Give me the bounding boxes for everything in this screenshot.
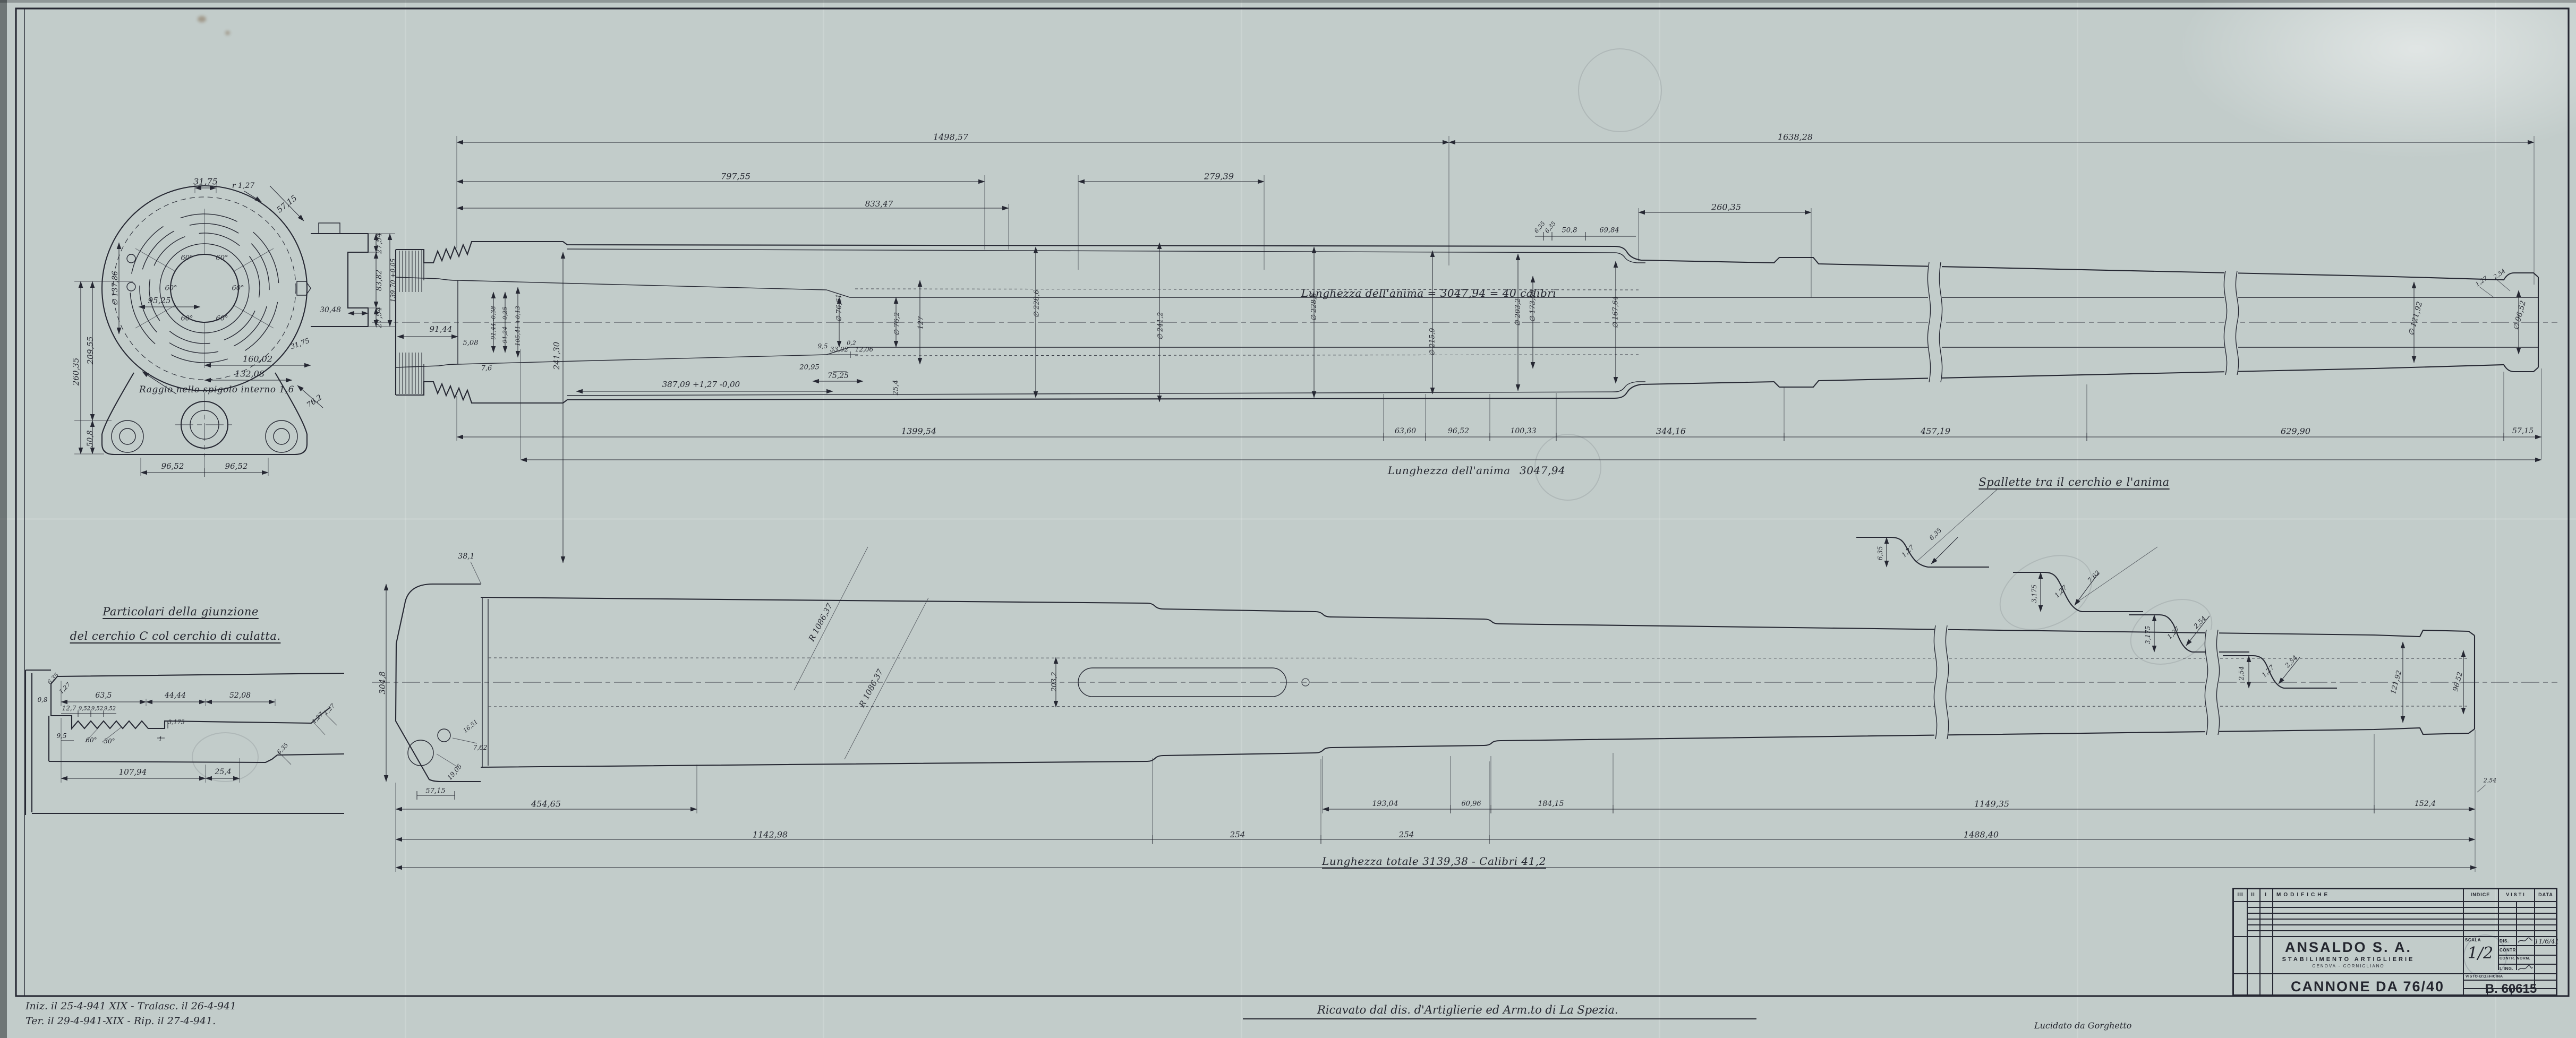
dim-label: 44,44	[165, 691, 186, 700]
title-block-line	[2247, 924, 2556, 925]
date-value: 11/6/41	[2535, 938, 2558, 945]
title-block-line	[2234, 901, 2556, 902]
dim-label: 1638,28	[1778, 132, 1813, 142]
dim-label: 2,54	[2193, 615, 2208, 630]
dim-label: 7,6	[481, 365, 492, 373]
dim-label: r 1,27	[232, 182, 254, 190]
dim-label: 0,8	[37, 696, 47, 704]
dim-label: 105,41 +0,13	[515, 306, 522, 346]
dim-label: 6,35	[1928, 527, 1943, 542]
dim-label: 60°	[216, 315, 228, 323]
dim-label: 30,48	[320, 306, 341, 314]
dim-label: 6,35	[46, 672, 61, 686]
dim-label: 9,5	[817, 342, 828, 350]
dim-label: 50,8	[86, 430, 95, 447]
col-header-data: DATA	[2534, 892, 2557, 897]
dim-label: 38,1	[458, 552, 474, 561]
dim-label: 96,52	[225, 461, 248, 471]
dim-label: 344,16	[1656, 426, 1686, 436]
dim-label: del cerchio C col cerchio di culatta.	[70, 630, 281, 642]
blueprint-sheet: 31,75r 1,2757,1527,9483,82139,70 +0,0527…	[0, 0, 2576, 1038]
dimension-labels: 31,75r 1,2757,1527,9483,82139,70 +0,0527…	[0, 0, 2576, 1038]
dim-label: 184,15	[1538, 800, 1564, 808]
col-header-ii: II	[2247, 892, 2259, 898]
dim-label: ∅ 121,92	[2407, 301, 2424, 337]
dim-label: 387,09 +1,27 -0,00	[662, 380, 740, 389]
dim-label: 2,54	[2492, 268, 2507, 281]
dim-label: Lunghezza dell'anima = 3047,94 = 40 cali…	[1301, 287, 1557, 299]
dim-label: 6,35	[1533, 220, 1547, 234]
dim-label: 9,52	[79, 706, 90, 712]
dim-label: 152,4	[2415, 800, 2436, 808]
dim-label: 83,82	[375, 270, 383, 291]
col-header-i: I	[2259, 892, 2272, 898]
dim-label: 19,05	[446, 762, 464, 781]
col-header-iii: III	[2234, 892, 2247, 898]
dim-label: 91,44 -0,38	[490, 306, 497, 339]
note-source: Ricavato dal dis. d'Artiglierie ed Arm.t…	[1243, 1003, 1756, 1019]
note-dates-line1: Iniz. il 25-4-941 XIX - Tralasc. il 26-4…	[25, 1000, 236, 1012]
dim-label: ∅ 96,52	[2512, 300, 2528, 331]
dim-label: 5,08	[463, 339, 479, 347]
signature-scribble	[2517, 937, 2533, 947]
dim-label: 1,27	[2474, 275, 2489, 288]
drawing-title: CANNONE DA 76/40	[2272, 979, 2463, 995]
dim-label: 1,27	[1900, 544, 1916, 559]
dim-label: R 1086,37	[857, 667, 885, 708]
dim-label: 132,08	[235, 369, 265, 379]
dim-label: 63,60	[1395, 427, 1416, 435]
col-header-visti: VISTI	[2498, 892, 2534, 897]
dim-label: 63,5	[95, 691, 112, 700]
dim-label: 279,39	[1204, 171, 1234, 182]
dim-label: 31,75	[289, 337, 311, 351]
dim-label: 254	[1230, 830, 1246, 839]
dim-label: 96,52	[1448, 427, 1469, 435]
title-block-line	[2247, 930, 2556, 931]
dim-label: 60°	[165, 285, 177, 293]
dim-label: 60°	[232, 285, 244, 293]
dim-label: 33,02	[830, 346, 848, 353]
title-block-line	[2234, 936, 2556, 937]
dim-label: R 1086,37	[807, 602, 835, 642]
dim-label: Raggio nello spigolo interno 1,6	[139, 384, 294, 395]
dim-label: ∅ 203,2	[1514, 298, 1522, 327]
dim-label: 27,94	[375, 233, 383, 254]
dim-label: ∅ 76,61	[835, 294, 843, 322]
dim-label: 2,54	[2238, 666, 2245, 681]
dim-label: ∅ 167,64	[1612, 296, 1620, 329]
title-block-line	[2247, 907, 2556, 908]
dim-label: 1,27	[58, 681, 72, 696]
dim-label: 1,27	[2166, 625, 2181, 641]
note-dates-line2: Ter. il 29-4-941-XIX - Rip. il 27-4-941.	[25, 1015, 216, 1027]
dim-label: 25,4	[892, 380, 900, 396]
dim-label: 9,5	[56, 732, 66, 740]
stamp-circle	[2463, 934, 2507, 978]
dim-label: 1498,57	[933, 132, 968, 142]
dim-label: 20,95	[799, 364, 819, 372]
dim-label: 254	[1399, 830, 1414, 839]
dim-label: 91,44	[430, 324, 453, 334]
dim-label: 833,47	[865, 199, 893, 209]
dim-label: Lunghezza dell'anima 3047,94	[1388, 464, 1566, 477]
dim-label: 260,35	[1711, 202, 1741, 212]
dim-label: 100,33	[1511, 427, 1537, 435]
dim-label: Spallette tra il cerchio e l'anima	[1978, 476, 2169, 488]
dim-label: 91,24 +0,25	[502, 307, 509, 344]
dim-label: ∅ 228,6	[1033, 290, 1041, 318]
dim-label: 1	[159, 736, 163, 743]
dim-label: 12,7	[62, 705, 76, 712]
dim-label: 1,27	[322, 702, 337, 717]
title-block: III II I MODIFICHE INDICE VISTI DATA ANS…	[2232, 888, 2557, 996]
dim-label: Particolari della giunzione	[103, 605, 259, 618]
dim-label: 12,06	[855, 346, 873, 353]
dim-label: 127	[917, 316, 925, 330]
dim-label: 60°	[86, 736, 97, 744]
dim-label: 52,08	[229, 691, 251, 700]
company-dept: STABILIMENTO ARTIGLIERIE	[2234, 956, 2463, 963]
dim-label: 6,35	[1876, 546, 1884, 561]
dim-label: 96,52	[161, 461, 184, 471]
dim-label: 95,25	[148, 296, 171, 305]
dim-label: 30°	[104, 737, 115, 745]
dim-label: 107,94	[119, 767, 147, 777]
dim-label: 241,30	[552, 342, 561, 370]
dim-label: 9,52	[91, 706, 103, 712]
dim-label: 57,15	[425, 787, 445, 795]
note-tracer: Lucidato da Gorghetto	[2034, 1020, 2131, 1031]
dim-label: 139,70 +0,05	[389, 259, 397, 303]
dim-label: 60°	[181, 315, 193, 323]
dim-label: 57,15	[275, 193, 299, 215]
company-name: ANSALDO S. A.	[2234, 939, 2463, 956]
dim-label: 160,02	[243, 354, 272, 364]
dim-label: 2,54	[2484, 777, 2497, 784]
dim-label: 60°	[181, 254, 193, 262]
dim-label: 121,92	[2390, 670, 2403, 695]
dim-label: 60,96	[1461, 800, 1481, 808]
dim-label: 3,175	[2031, 585, 2038, 603]
dim-label: ∅ 241,2	[1157, 312, 1165, 340]
col-header-modifiche: MODIFICHE	[2276, 892, 2330, 898]
dim-label: 50,8	[1562, 227, 1577, 235]
title-block-line	[2247, 919, 2556, 920]
dim-label: 31,75	[193, 177, 218, 187]
dim-label: 1,27	[311, 711, 325, 725]
dim-label: 1488,40	[1964, 830, 1999, 840]
dim-label: 7,62	[473, 744, 488, 751]
dim-label: 1,27	[2053, 584, 2069, 599]
dim-label: ∅ 215,9	[1429, 328, 1437, 356]
dim-label: 1142,98	[753, 830, 788, 840]
dim-label: 6,35	[276, 742, 290, 756]
dim-label: 457,19	[1921, 426, 1950, 436]
dim-label: 3,175	[2144, 626, 2152, 644]
dim-label: 7,62	[2086, 569, 2102, 585]
dim-label: 3,175	[168, 719, 185, 726]
dim-label: 57,15	[2512, 427, 2534, 435]
dim-label: 304,8	[378, 672, 387, 694]
dim-label: 2,54	[2284, 654, 2299, 670]
dim-label: 797,55	[721, 171, 750, 182]
col-header-indice: INDICE	[2463, 892, 2498, 897]
dim-label: 75,25	[828, 372, 849, 380]
dim-label: 209,55	[86, 337, 95, 365]
dim-label: 1149,35	[1974, 799, 2009, 809]
dim-label: 76,2	[305, 393, 324, 410]
dim-label: 203,2	[1051, 672, 1059, 691]
dim-label: 454,65	[531, 799, 561, 809]
dim-label: 16,51	[462, 718, 479, 734]
dim-label: 260,35	[71, 358, 81, 386]
dim-label: 6,35	[1543, 220, 1557, 234]
dim-label: 60°	[216, 254, 228, 262]
dim-label: 1399,54	[901, 426, 936, 436]
title-block-line	[2247, 913, 2556, 914]
dim-label: 96,52	[2452, 671, 2464, 692]
dim-label: 69,84	[1599, 227, 1619, 235]
dim-label: ∅ 76,2	[893, 312, 901, 336]
dim-label: 1,27	[2261, 664, 2276, 679]
dim-label: 27,94	[375, 307, 383, 328]
dim-label: Lunghezza totale 3139,38 - Calibri 41,2	[1322, 855, 1546, 868]
dim-label: 9,52	[104, 706, 116, 712]
dim-label: 25,4	[215, 768, 231, 776]
dim-label: 193,04	[1372, 800, 1398, 808]
dim-label: 629,90	[2281, 426, 2310, 436]
company-city: GENOVA - CORNIGLIANO	[2234, 964, 2463, 968]
dim-label: ∅ 137,86	[111, 271, 120, 306]
